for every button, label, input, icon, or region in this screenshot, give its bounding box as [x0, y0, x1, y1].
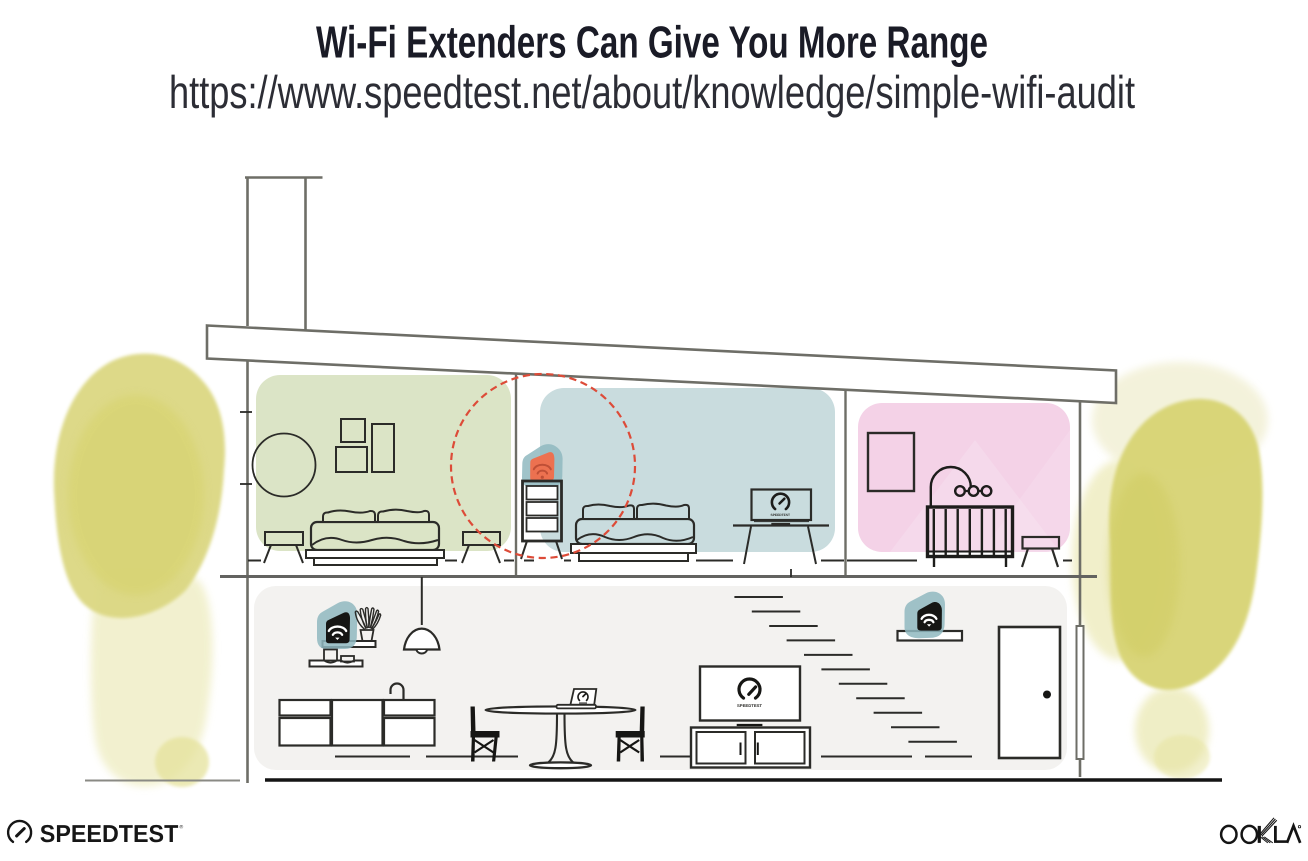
svg-text:Wi-Fi Extenders Can Give You M: Wi-Fi Extenders Can Give You More Range — [316, 16, 988, 67]
svg-text:SPEEDTEST: SPEEDTEST — [771, 513, 791, 517]
svg-text:SPEEDTEST: SPEEDTEST — [40, 821, 179, 848]
svg-text:®: ® — [180, 825, 184, 831]
svg-text:https://www.speedtest.net/abou: https://www.speedtest.net/about/knowledg… — [169, 66, 1135, 118]
svg-text:SPEEDTEST: SPEEDTEST — [737, 703, 763, 708]
